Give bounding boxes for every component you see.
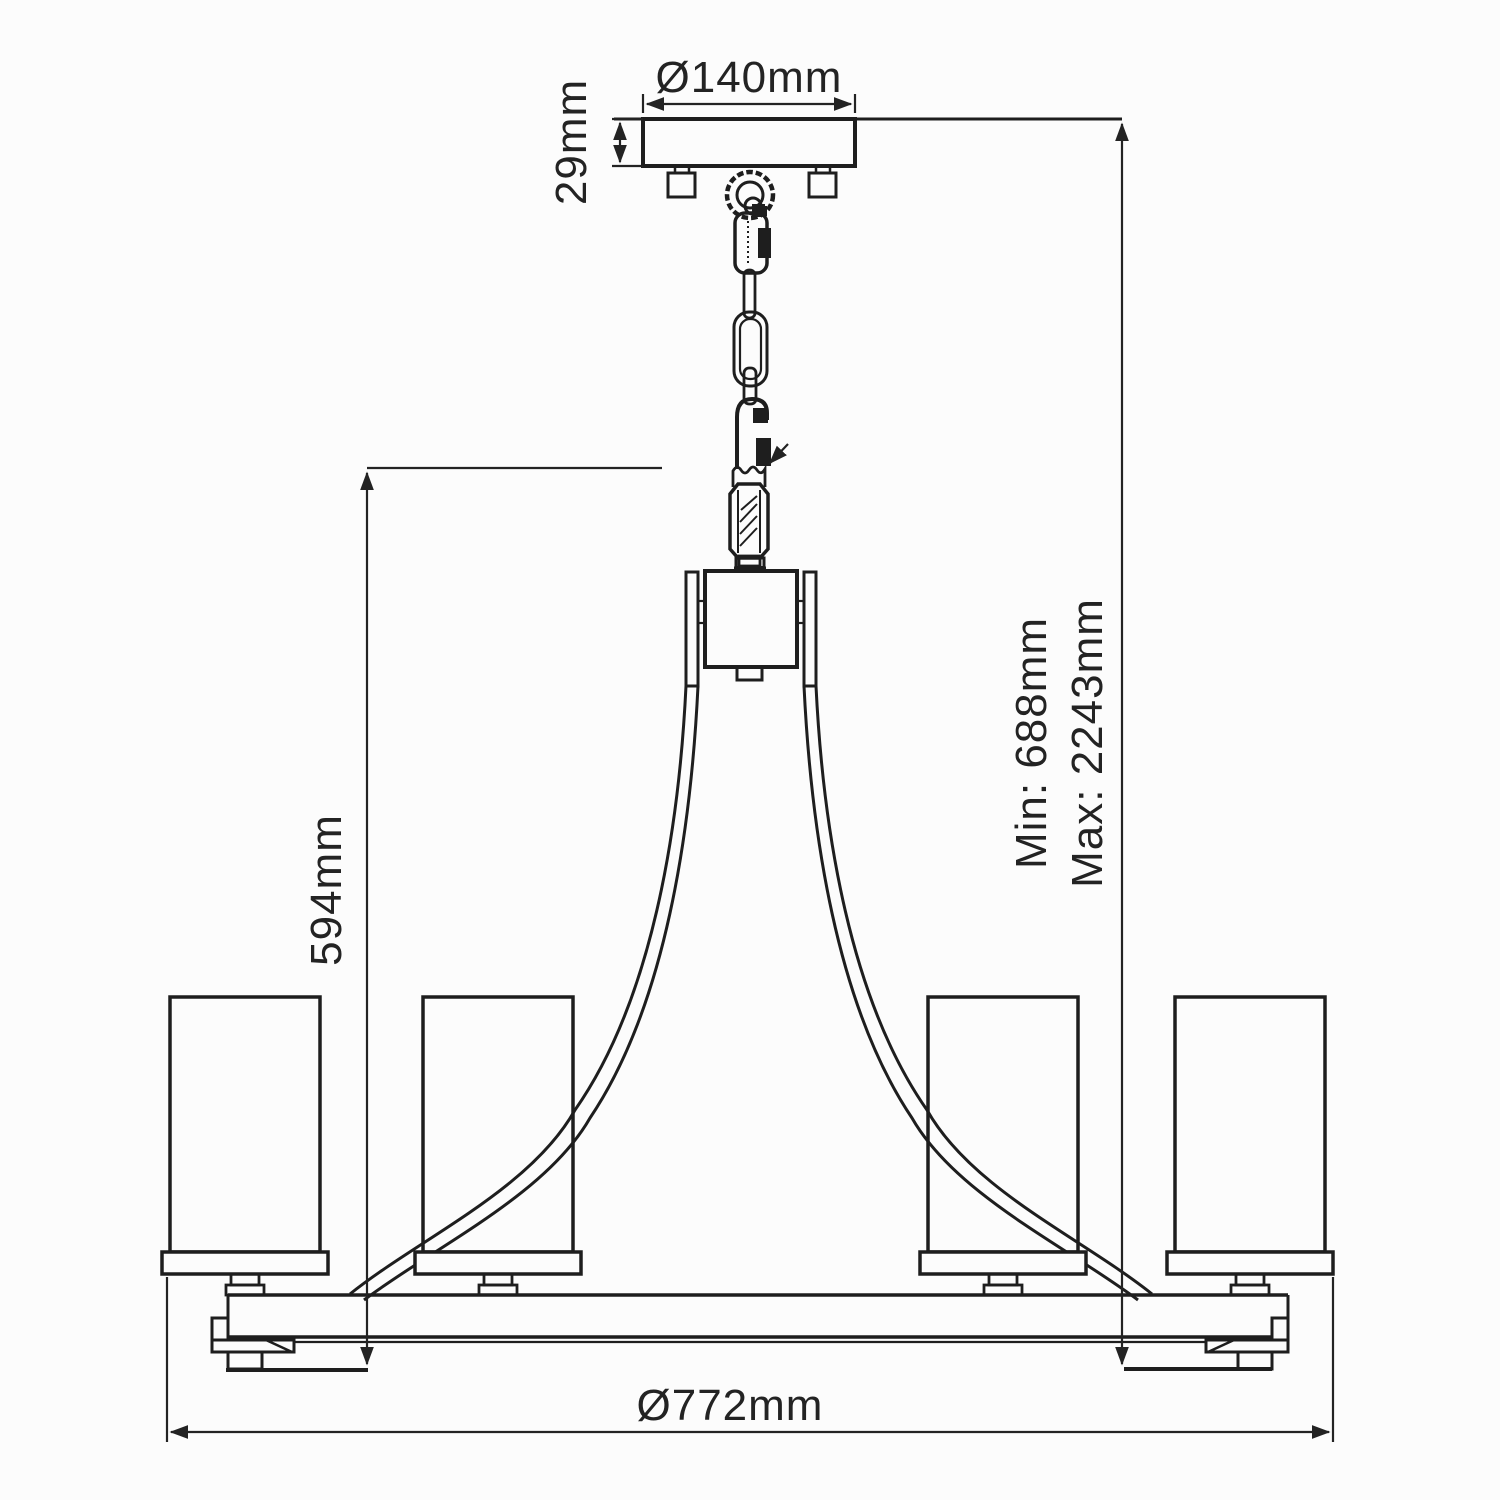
chandelier-dimension-drawing: Ø140mm 29mm 594mm Min: 688mm Max: 2243mm…: [0, 0, 1500, 1500]
dim-label-body-height: 594mm: [302, 814, 351, 966]
adjuster-hatching: [740, 496, 757, 546]
ring-frame: [212, 1295, 1288, 1370]
bracket-block: [228, 1352, 262, 1369]
dim-suspension-height: Min: 688mm Max: 2243mm: [1007, 124, 1122, 1364]
shade-cylinder: [928, 997, 1078, 1252]
dim-label-suspension-min: Min: 688mm: [1007, 617, 1056, 869]
dim-label-canopy-diameter: Ø140mm: [656, 53, 843, 102]
hub-side-plate-right: [804, 572, 816, 686]
hub-box: [705, 571, 797, 667]
shade-base-plate: [920, 1252, 1086, 1274]
hook-clamp-upper: [753, 408, 768, 423]
ceiling-hook-ring: [727, 172, 773, 218]
dim-canopy-diameter: Ø140mm: [643, 53, 855, 113]
shade-base-plate: [162, 1252, 328, 1274]
hub-side-plate-left: [686, 572, 698, 686]
drawing-canvas: Ø140mm 29mm 594mm Min: 688mm Max: 2243mm…: [0, 0, 1500, 1500]
dim-label-overall-diameter: Ø772mm: [637, 1381, 824, 1430]
dim-canopy-height: 29mm: [547, 79, 643, 205]
shackle-pin: [758, 228, 771, 258]
shackle-top-clamp: [752, 204, 765, 217]
chain-link-large-inner: [740, 319, 761, 379]
shade-4: [1167, 997, 1333, 1295]
height-adjuster: [730, 467, 768, 572]
central-hub: [686, 558, 816, 686]
hook-clamp-lower: [756, 438, 771, 466]
dim-overall-diameter: Ø772mm: [167, 1277, 1333, 1442]
hook-pointer-arrow: [770, 444, 788, 463]
ring-end-bracket-right: [1124, 1318, 1288, 1369]
shade-3: [920, 997, 1086, 1295]
ceiling-canopy: [614, 119, 1122, 197]
shade-base-plate: [1167, 1252, 1333, 1274]
lower-hook: [737, 399, 788, 469]
shade-cylinder: [170, 997, 320, 1252]
shade-cylinder: [423, 997, 573, 1252]
left-arm: [350, 686, 698, 1300]
shade-base-plate: [415, 1252, 581, 1274]
suspension-chain: [727, 172, 788, 572]
dim-body-height: 594mm: [302, 468, 662, 1364]
left-arm-outer: [350, 686, 686, 1294]
shade-2: [415, 997, 581, 1295]
adjuster-body: [730, 484, 768, 558]
canopy-bolt-right: [809, 173, 836, 197]
dim-label-canopy-height: 29mm: [547, 79, 596, 205]
canopy-bolt-left: [668, 173, 695, 197]
dim-label-suspension-max: Max: 2243mm: [1063, 598, 1112, 888]
canopy-plate: [643, 119, 855, 166]
bracket-block: [1238, 1352, 1272, 1369]
ring-end-bracket-left: [212, 1318, 368, 1370]
chain-links: [734, 270, 767, 404]
shade-cylinder: [1175, 997, 1325, 1252]
shade-1: [162, 997, 328, 1295]
left-arm-inner: [364, 686, 698, 1300]
